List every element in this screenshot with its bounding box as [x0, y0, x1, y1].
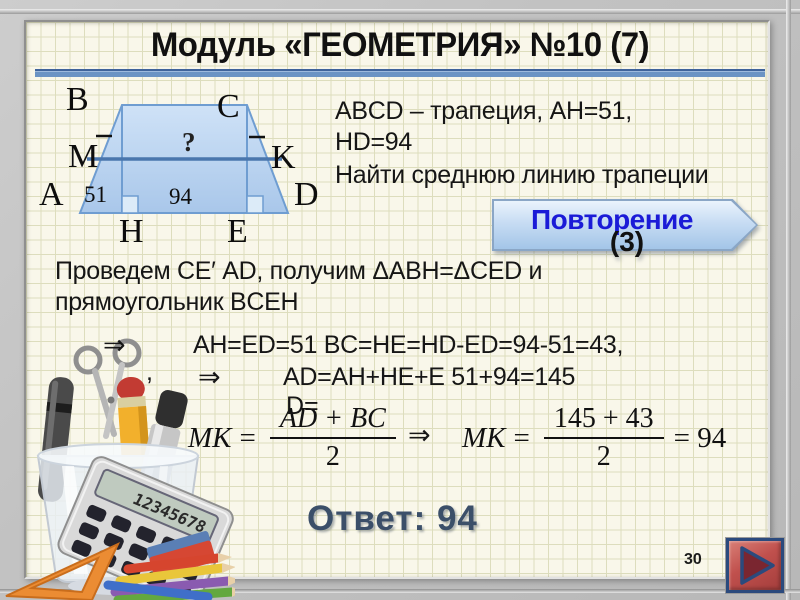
solution-line-4-wrap: D=	[286, 392, 319, 421]
point-label-e: E	[227, 215, 248, 249]
formula1-eq: =	[240, 422, 256, 455]
vertex-label-c: C	[217, 90, 240, 124]
slide-title: Модуль «ГЕОМЕТРИЯ» №10 (7)	[41, 26, 759, 65]
problem-line-2: HD=94	[335, 128, 412, 157]
solution-line-2: прямоугольник BCEH	[55, 288, 298, 317]
play-arrow-icon	[729, 541, 781, 590]
solution-line-4: AD=AH+HE+E 51+94=145	[283, 363, 575, 392]
answer-text: Ответ: 94	[307, 499, 478, 539]
formula1-denominator: 2	[270, 439, 396, 473]
vertex-label-a: A	[39, 178, 64, 212]
title-underline	[35, 69, 765, 77]
segment-he-value: 94	[169, 185, 192, 208]
trapezoid-diagram: B C M K A D H E ? 51 94	[30, 80, 335, 252]
solution-line-1: Проведем СЕ′ AD, получим ΔABH=ΔCED и	[55, 257, 542, 286]
formula2-fraction: 145 + 43 2	[544, 403, 664, 473]
vertex-label-d: D	[294, 178, 319, 212]
problem-line-1: ABCD – трапеция, AH=51,	[335, 97, 632, 126]
repeat-button[interactable]: Повторение (3)	[492, 199, 758, 251]
formula2-eq: =	[514, 422, 530, 455]
right-angle-mark-e	[247, 196, 263, 213]
point-label-m: M	[68, 140, 98, 174]
point-label-k: K	[271, 141, 296, 175]
solution-line-3: AH=ED=51 BC=HE=HD-ED=94-51=43,	[193, 331, 623, 360]
segment-ah-value: 51	[84, 183, 107, 206]
formula1-lhs: MK	[188, 422, 232, 455]
question-mark-label: ?	[182, 129, 196, 156]
right-angle-mark-h	[122, 196, 138, 213]
formula2-numerator: 145 + 43	[544, 403, 664, 439]
formula2-result: = 94	[674, 422, 727, 455]
solution-comma: ,	[146, 358, 153, 387]
slide: 12345678 Модуль «ГЕОМЕТРИЯ	[0, 0, 800, 600]
implies-arrow-1: ⇒	[103, 330, 126, 361]
next-slide-button[interactable]	[726, 538, 784, 593]
formula2-lhs: MK	[462, 422, 506, 455]
page-number: 30	[684, 551, 702, 569]
repeat-button-count: (3)	[592, 226, 662, 258]
problem-task: Найти среднюю линию трапеции	[335, 161, 708, 190]
implies-arrow-2: ⇒	[198, 362, 221, 393]
vertex-label-b: B	[66, 83, 89, 117]
formula2-denominator: 2	[544, 439, 664, 473]
point-label-h: H	[119, 215, 144, 249]
implies-arrow-3: ⇒	[408, 420, 431, 451]
formula-midline-numeric: MK = 145 + 43 2 = 94	[462, 403, 726, 473]
